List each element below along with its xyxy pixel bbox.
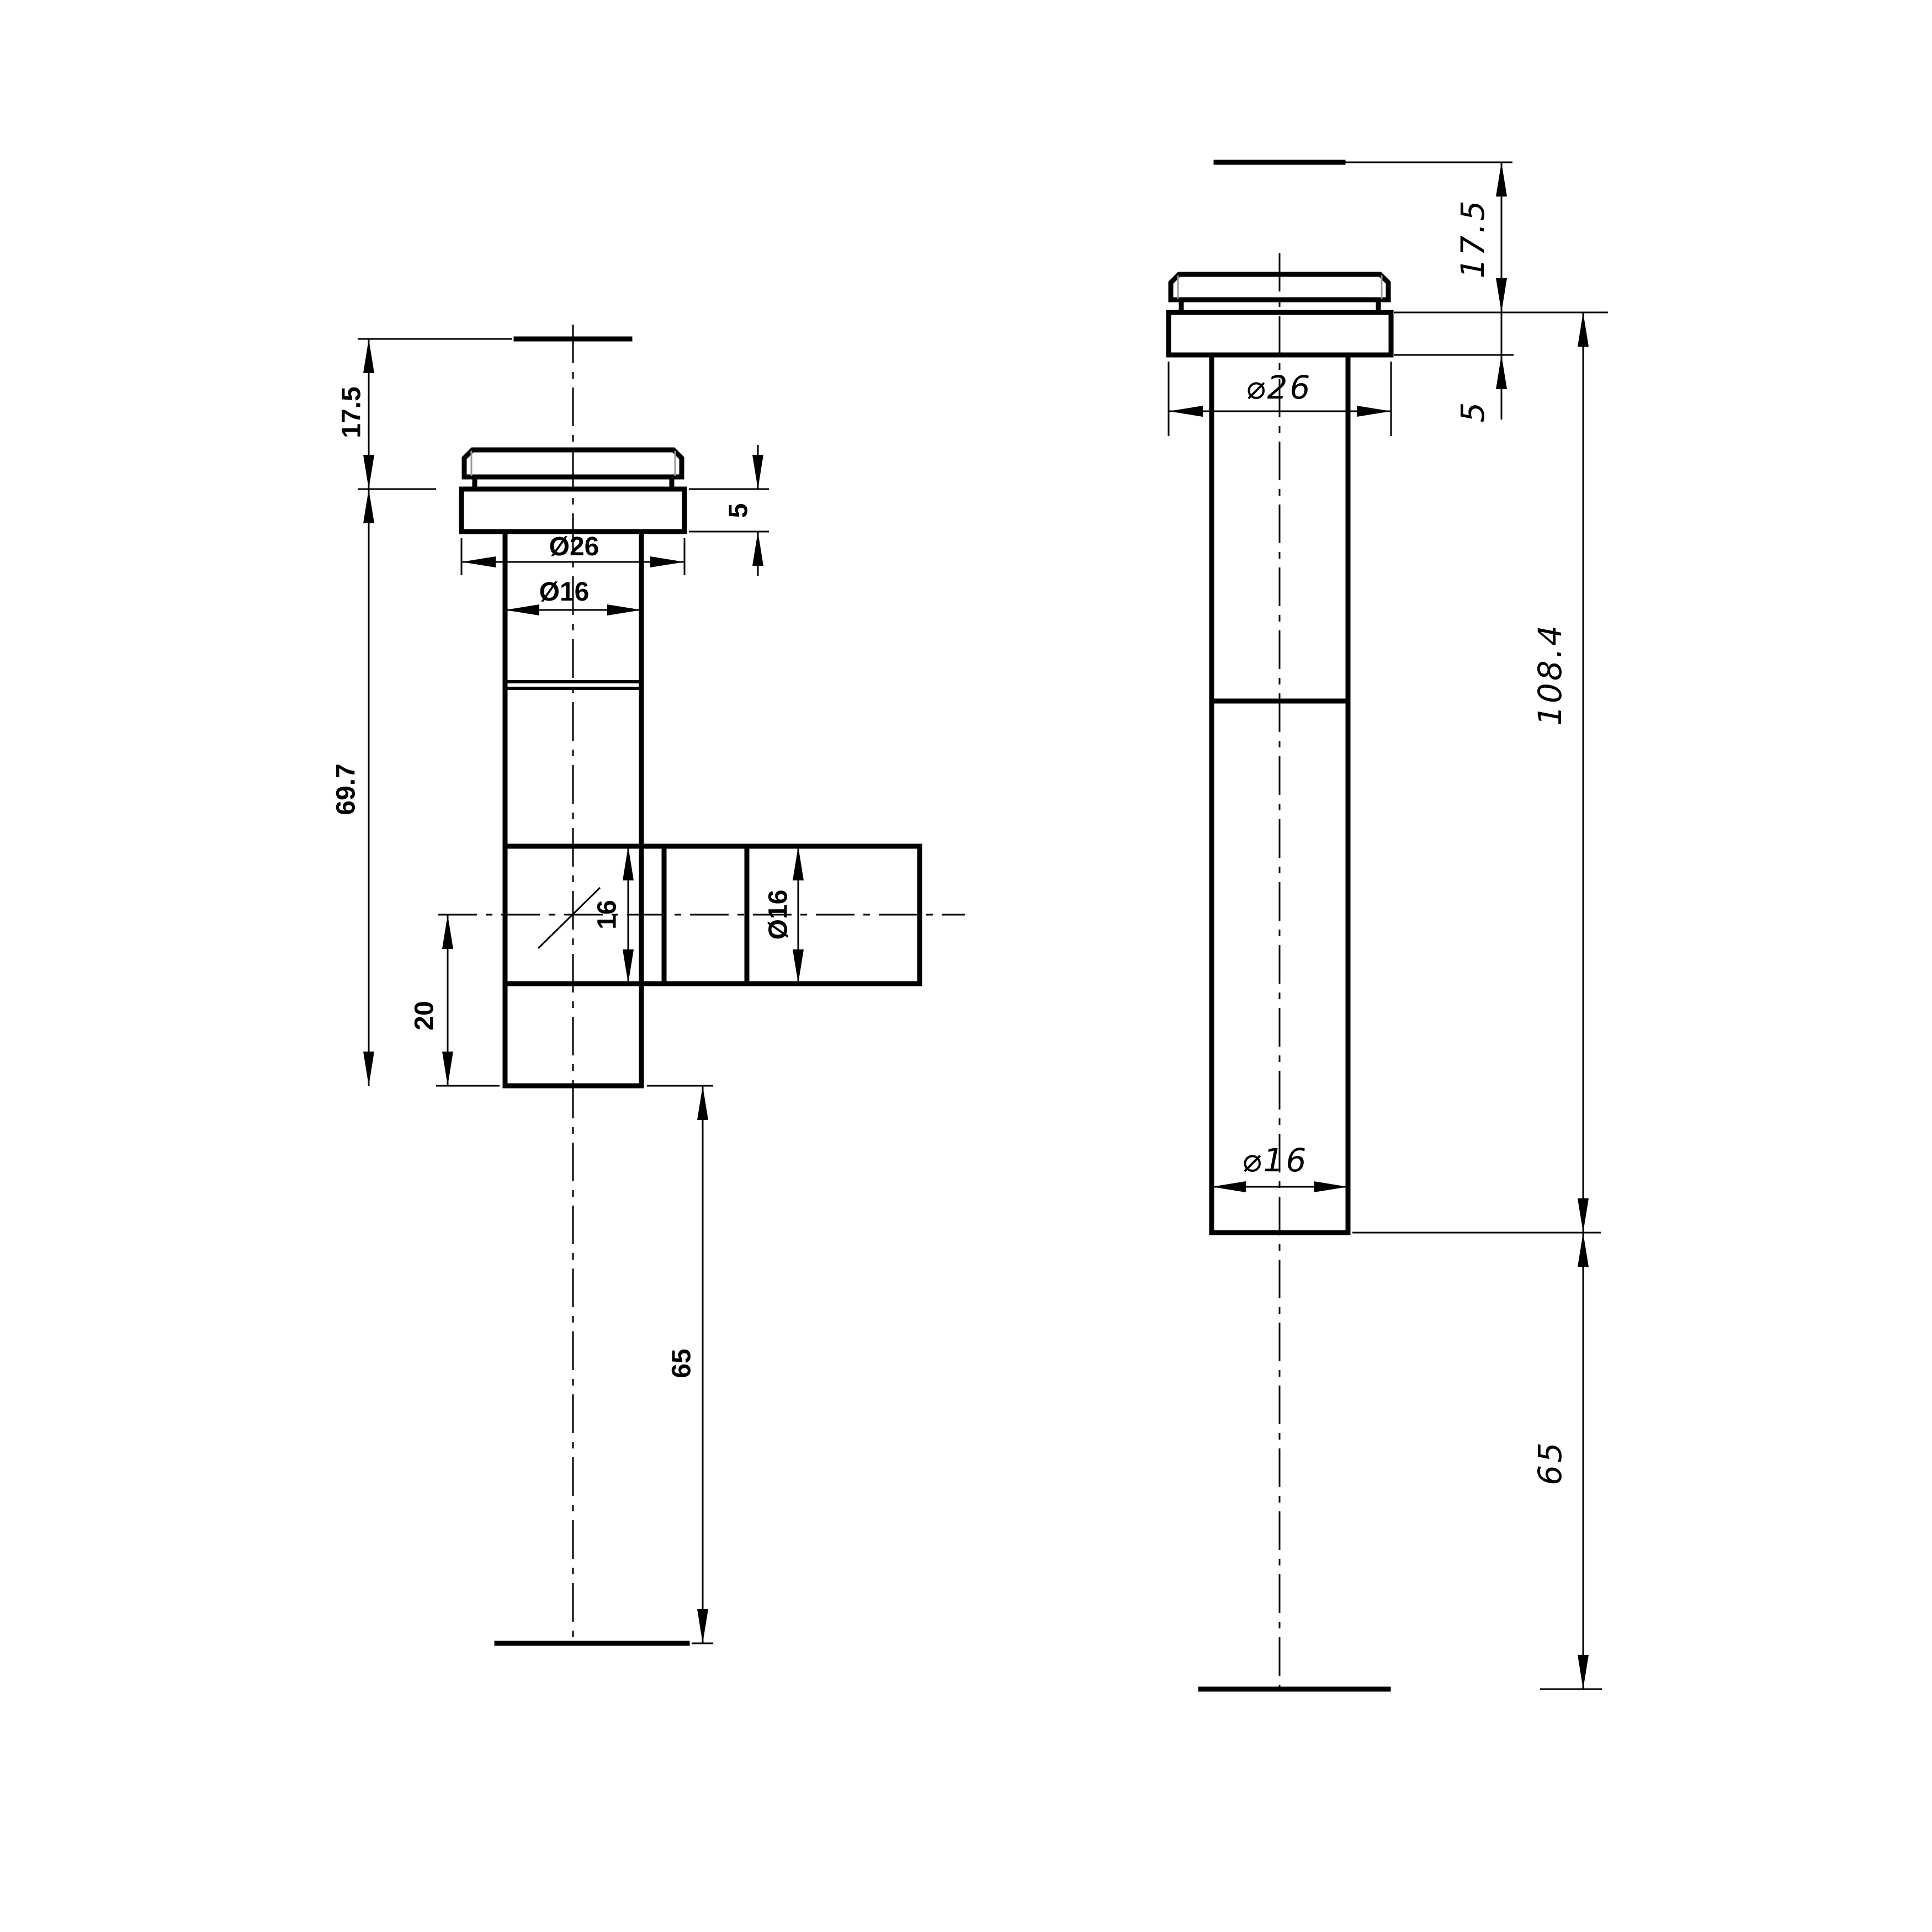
front-dimension-labels: 17.5 69.7 5 Ø26 Ø16 16 Ø16 20 65 <box>332 386 793 1378</box>
side-dimension-labels: 17.5 5 ⌀26 108.4 ⌀16 65 <box>1242 198 1569 1485</box>
dim-label-side-flange-diameter: ⌀26 <box>1246 369 1313 406</box>
dim-label-tail-length: 65 <box>667 1349 697 1378</box>
dim-label-side-flange-thickness: 5 <box>1454 400 1492 423</box>
dim-label-pipe-diameter: Ø16 <box>539 577 590 607</box>
dim-label-side-overall-length: 108.4 <box>1531 623 1569 726</box>
dim-label-branch-diameter: Ø16 <box>764 890 793 940</box>
drawing-canvas: 17.5 69.7 5 Ø26 Ø16 16 Ø16 20 65 <box>0 0 1932 1932</box>
cad-drawing: 17.5 69.7 5 Ø26 Ø16 16 Ø16 20 65 <box>0 0 1932 1932</box>
front-object-lines <box>461 339 920 1643</box>
side-view: 17.5 5 ⌀26 108.4 ⌀16 65 <box>1169 162 1608 1689</box>
dim-label-side-pipe-diameter: ⌀16 <box>1242 1142 1309 1179</box>
dim-label-side-tail-length: 65 <box>1531 1440 1569 1485</box>
dim-label-branch-bore: 16 <box>593 900 622 929</box>
dim-label-flange-diameter: Ø26 <box>549 532 599 561</box>
front-joint-double-line <box>505 682 641 688</box>
front-view: 17.5 69.7 5 Ø26 Ø16 16 Ø16 20 65 <box>332 325 965 1643</box>
dim-label-flange-thickness: 5 <box>724 503 753 518</box>
dim-label-body-length: 69.7 <box>332 763 361 815</box>
side-dimension-lines <box>1169 162 1583 1689</box>
dim-label-branch-offset: 20 <box>410 1001 439 1030</box>
dim-label-cap-height: 17.5 <box>337 386 367 438</box>
dim-label-side-cap-height: 17.5 <box>1454 198 1492 278</box>
front-section-slash <box>538 888 600 948</box>
